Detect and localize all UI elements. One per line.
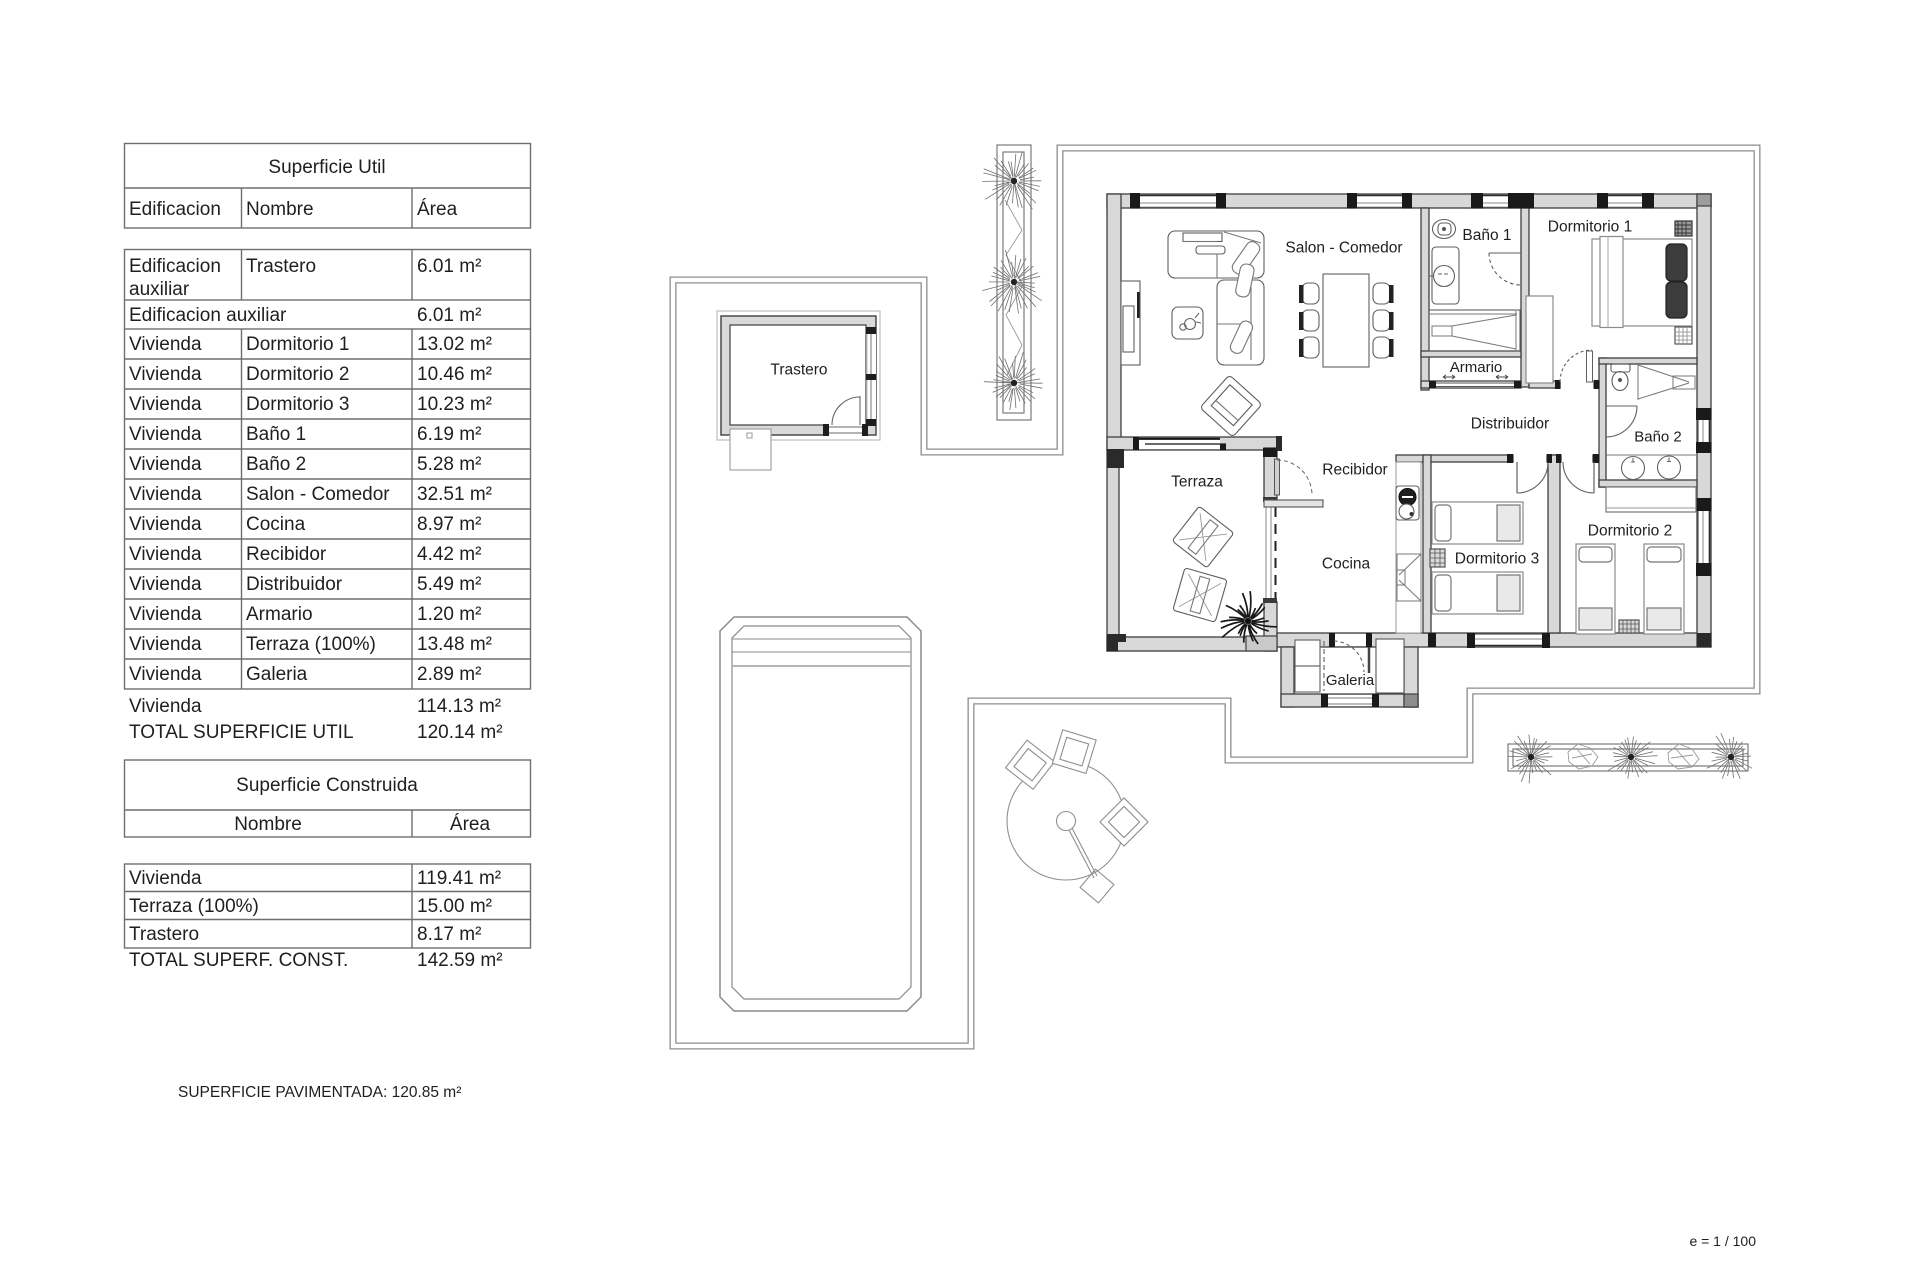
svg-text:Edificacion: Edificacion bbox=[129, 256, 221, 277]
svg-text:6.01 m²: 6.01 m² bbox=[417, 305, 481, 326]
svg-text:Trastero: Trastero bbox=[770, 362, 827, 379]
svg-text:32.51 m²: 32.51 m² bbox=[417, 484, 492, 505]
svg-text:Vivienda: Vivienda bbox=[129, 544, 202, 565]
svg-text:Vivienda: Vivienda bbox=[129, 696, 202, 717]
svg-text:10.46 m²: 10.46 m² bbox=[417, 364, 492, 385]
svg-text:Edificacion auxiliar: Edificacion auxiliar bbox=[129, 305, 287, 326]
svg-text:Terraza (100%): Terraza (100%) bbox=[246, 634, 376, 655]
svg-text:Vivienda: Vivienda bbox=[129, 454, 202, 475]
svg-text:TOTAL SUPERFICIE UTIL: TOTAL SUPERFICIE UTIL bbox=[129, 722, 354, 743]
svg-text:120.14 m²: 120.14 m² bbox=[417, 722, 503, 743]
svg-text:Trastero: Trastero bbox=[129, 924, 199, 945]
svg-text:Salon - Comedor: Salon - Comedor bbox=[246, 484, 390, 505]
svg-text:Cocina: Cocina bbox=[246, 514, 306, 535]
svg-text:Vivienda: Vivienda bbox=[129, 364, 202, 385]
svg-text:Salon - Comedor: Salon - Comedor bbox=[1285, 240, 1402, 257]
svg-text:Superficie Construida: Superficie Construida bbox=[236, 775, 418, 796]
svg-text:Dormitorio 2: Dormitorio 2 bbox=[1588, 523, 1672, 540]
svg-text:Dormitorio 1: Dormitorio 1 bbox=[246, 334, 349, 355]
svg-text:142.59 m²: 142.59 m² bbox=[417, 950, 503, 971]
svg-text:Vivienda: Vivienda bbox=[129, 574, 202, 595]
svg-text:Vivienda: Vivienda bbox=[129, 634, 202, 655]
svg-text:8.17 m²: 8.17 m² bbox=[417, 924, 481, 945]
svg-text:auxiliar: auxiliar bbox=[129, 279, 190, 300]
svg-text:Trastero: Trastero bbox=[246, 256, 316, 277]
svg-text:2.89 m²: 2.89 m² bbox=[417, 664, 481, 685]
svg-text:Nombre: Nombre bbox=[246, 199, 314, 220]
svg-text:Vivienda: Vivienda bbox=[129, 334, 202, 355]
svg-text:Armario: Armario bbox=[1450, 359, 1503, 376]
svg-text:114.13 m²: 114.13 m² bbox=[417, 696, 501, 717]
svg-text:Vivienda: Vivienda bbox=[129, 514, 202, 535]
svg-text:Terraza: Terraza bbox=[1171, 474, 1223, 491]
svg-text:Dormitorio 3: Dormitorio 3 bbox=[246, 394, 349, 415]
svg-text:6.19 m²: 6.19 m² bbox=[417, 424, 481, 445]
svg-text:Superficie Util: Superficie Util bbox=[268, 157, 385, 178]
svg-text:Vivienda: Vivienda bbox=[129, 868, 202, 889]
svg-text:Galeria: Galeria bbox=[1326, 672, 1375, 689]
svg-text:Vivienda: Vivienda bbox=[129, 394, 202, 415]
svg-text:15.00 m²: 15.00 m² bbox=[417, 896, 492, 917]
svg-text:1.20 m²: 1.20 m² bbox=[417, 604, 481, 625]
svg-text:Cocina: Cocina bbox=[1322, 556, 1371, 573]
svg-text:4.42 m²: 4.42 m² bbox=[417, 544, 481, 565]
svg-text:Baño 2: Baño 2 bbox=[1634, 429, 1682, 446]
svg-text:Vivienda: Vivienda bbox=[129, 604, 202, 625]
svg-text:Vivienda: Vivienda bbox=[129, 424, 202, 445]
svg-text:8.97 m²: 8.97 m² bbox=[417, 514, 481, 535]
svg-text:Edificacion: Edificacion bbox=[129, 199, 221, 220]
svg-text:5.28 m²: 5.28 m² bbox=[417, 454, 481, 475]
svg-text:5.49 m²: 5.49 m² bbox=[417, 574, 481, 595]
svg-text:13.48 m²: 13.48 m² bbox=[417, 634, 492, 655]
svg-text:119.41 m²: 119.41 m² bbox=[417, 868, 501, 889]
svg-text:SUPERFICIE PAVIMENTADA: 120.85: SUPERFICIE PAVIMENTADA: 120.85 m² bbox=[178, 1084, 461, 1101]
svg-text:Dormitorio 3: Dormitorio 3 bbox=[1455, 551, 1539, 568]
svg-text:13.02 m²: 13.02 m² bbox=[417, 334, 492, 355]
svg-text:Baño 1: Baño 1 bbox=[246, 424, 306, 445]
svg-text:Baño 1: Baño 1 bbox=[1462, 227, 1511, 244]
svg-text:Área: Área bbox=[450, 814, 491, 835]
svg-text:Galeria: Galeria bbox=[246, 664, 308, 685]
svg-text:Distribuidor: Distribuidor bbox=[246, 574, 343, 595]
svg-text:Terraza (100%): Terraza (100%) bbox=[129, 896, 259, 917]
svg-text:6.01 m²: 6.01 m² bbox=[417, 256, 481, 277]
svg-text:Baño 2: Baño 2 bbox=[246, 454, 306, 475]
svg-text:Dormitorio 1: Dormitorio 1 bbox=[1548, 219, 1632, 236]
svg-text:Armario: Armario bbox=[246, 604, 313, 625]
svg-text:Vivienda: Vivienda bbox=[129, 664, 202, 685]
svg-text:e = 1 / 100: e = 1 / 100 bbox=[1689, 1233, 1756, 1249]
svg-text:Recibidor: Recibidor bbox=[1322, 462, 1387, 479]
svg-text:Distribuidor: Distribuidor bbox=[1471, 416, 1549, 433]
svg-text:Área: Área bbox=[417, 199, 458, 220]
svg-text:TOTAL SUPERF. CONST.: TOTAL SUPERF. CONST. bbox=[129, 950, 348, 971]
svg-text:10.23 m²: 10.23 m² bbox=[417, 394, 492, 415]
svg-text:Nombre: Nombre bbox=[234, 814, 302, 835]
svg-text:Vivienda: Vivienda bbox=[129, 484, 202, 505]
svg-text:Recibidor: Recibidor bbox=[246, 544, 327, 565]
svg-text:Dormitorio 2: Dormitorio 2 bbox=[246, 364, 349, 385]
